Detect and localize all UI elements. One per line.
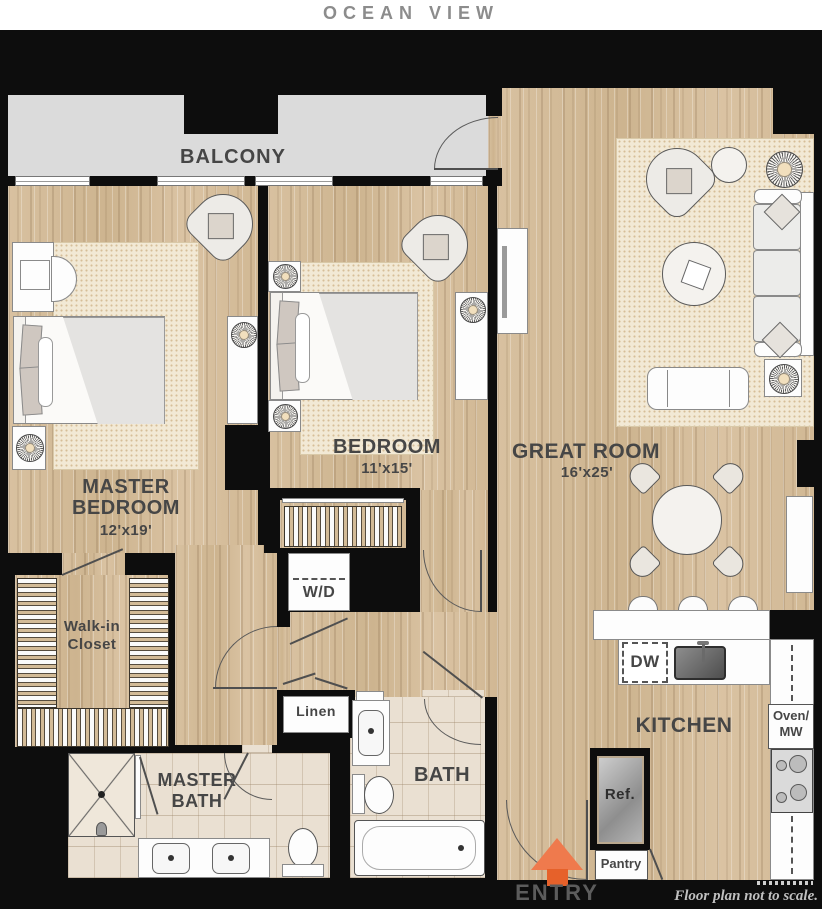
plant-icon — [766, 151, 803, 188]
sofa-back — [800, 192, 814, 356]
table-lamp-icon — [273, 264, 298, 289]
buffet-cabinet — [786, 496, 813, 593]
page-title: OCEAN VIEW — [0, 3, 822, 24]
wall — [184, 95, 278, 134]
blanket — [319, 293, 418, 400]
tv-icon — [502, 246, 507, 318]
counter-dash — [791, 816, 793, 874]
wall — [225, 425, 270, 490]
faucet-dot — [228, 855, 234, 861]
bath-shelf — [356, 691, 384, 701]
burner-icon — [776, 792, 787, 803]
sofa-cushion — [753, 250, 801, 296]
master-bath-label-line2: BATH — [172, 791, 223, 812]
window — [430, 176, 483, 186]
counter-dash — [791, 645, 793, 701]
drain-dot — [458, 845, 464, 851]
kitchen-sink — [674, 646, 726, 680]
closet-rack — [284, 506, 402, 547]
dresser-box — [20, 260, 50, 290]
dishwasher-label: DW — [630, 652, 659, 672]
oven-label-line1: Oven/ — [773, 708, 809, 723]
great-room-label: GREAT ROOM — [512, 440, 660, 464]
bedroom-door-leaf — [480, 550, 482, 612]
closet-rack — [129, 578, 169, 708]
balcony-label: BALCONY — [180, 146, 286, 169]
closet-rack — [17, 578, 57, 708]
bath-label: BATH — [414, 764, 470, 787]
hall-door-leaf — [213, 687, 277, 689]
bedroom-dims: 11'x15' — [361, 460, 413, 477]
walk-in-closet-label-line1: Walk-in — [64, 618, 120, 635]
plant-icon — [460, 297, 486, 323]
pantry-label: Pantry — [601, 856, 641, 871]
window — [255, 176, 333, 186]
bedroom-label: BEDROOM — [333, 436, 441, 459]
master-bedroom-dims: 12'x19' — [100, 522, 152, 539]
blanket — [63, 317, 165, 424]
closet-shelf — [282, 498, 404, 503]
bedroom-bed — [270, 292, 418, 400]
toilet-base — [282, 864, 324, 877]
table-lamp-icon — [273, 404, 298, 429]
washer-dryer-label: W/D — [303, 584, 336, 602]
linen-label: Linen — [296, 703, 336, 719]
dining-table — [652, 485, 722, 555]
bench-seam — [729, 370, 730, 407]
ottoman-bench — [647, 367, 749, 410]
wall — [797, 440, 822, 487]
entry-arrow-icon — [531, 838, 583, 870]
master-bedroom-label-line2: BEDROOM — [72, 497, 180, 520]
toilet-bowl — [288, 828, 318, 868]
balcony-door-leaf — [434, 168, 498, 170]
wall — [770, 610, 814, 639]
kitchen-label: KITCHEN — [636, 714, 733, 738]
burner-icon — [789, 755, 807, 773]
burner-icon — [776, 760, 787, 771]
master-bed — [13, 316, 165, 424]
walk-in-closet-label-line2: Closet — [68, 636, 117, 653]
plant-icon — [231, 322, 257, 348]
throw-pillow — [208, 213, 234, 239]
bolster-pillow — [38, 337, 53, 407]
plant-icon — [769, 364, 799, 394]
hatch-marks — [757, 881, 813, 885]
shower-drain-dot — [98, 791, 105, 798]
wall — [350, 548, 420, 612]
refrigerator-label: Ref. — [605, 786, 635, 803]
washer-dryer-divider — [293, 578, 345, 580]
faucet-dot — [168, 855, 174, 861]
faucet-dot — [368, 728, 374, 734]
footnote: Floor plan not to scale. — [600, 888, 818, 905]
toilet-bowl — [364, 776, 394, 814]
side-table — [711, 147, 747, 183]
throw-pillow — [666, 168, 692, 194]
throw-pillow — [423, 234, 449, 260]
table-lamp-icon — [16, 434, 44, 462]
kitchen-island-bar — [593, 610, 770, 640]
bolster-pillow — [295, 313, 310, 383]
window — [15, 176, 90, 186]
wall — [773, 88, 822, 134]
floor-plan: OCEAN VIEW BALCONY MASTER BEDROOM — [0, 0, 822, 909]
shower-door — [135, 755, 141, 819]
bench-seam — [667, 370, 668, 407]
master-bedroom-label-line1: MASTER — [82, 476, 169, 499]
closet-rack — [17, 708, 169, 747]
shower-head-icon — [96, 822, 107, 836]
oven-label-line2: MW — [779, 724, 802, 739]
wall — [486, 168, 502, 186]
burner-icon — [790, 784, 807, 801]
entry-label: ENTRY — [515, 880, 599, 906]
window — [157, 176, 245, 186]
wall — [486, 88, 502, 116]
master-bath-label-line1: MASTER — [158, 770, 237, 791]
entry-door-leaf — [586, 800, 588, 880]
washer-dryer — [288, 553, 350, 611]
faucet-icon — [702, 644, 705, 662]
great-room-dims: 16'x25' — [561, 464, 613, 481]
